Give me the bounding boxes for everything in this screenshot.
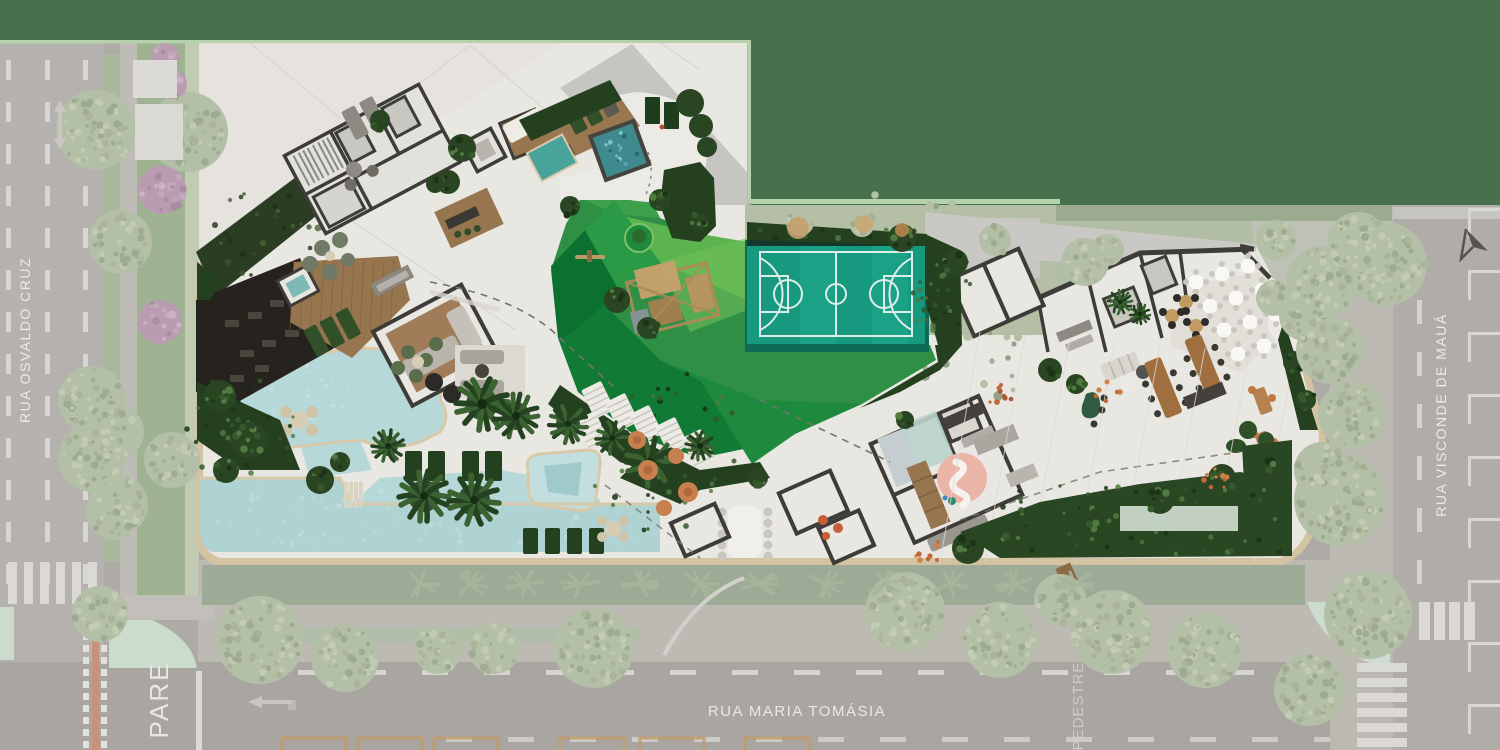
svg-text:PARE: PARE	[144, 662, 174, 739]
svg-text:RUA VISCONDE DE MAUÁ: RUA VISCONDE DE MAUÁ	[1433, 313, 1449, 516]
svg-text:RUA OSVALDO CRUZ: RUA OSVALDO CRUZ	[17, 257, 33, 423]
svg-text:RUA MARIA TOMÁSIA: RUA MARIA TOMÁSIA	[708, 703, 886, 720]
svg-text:PEDESTRE: PEDESTRE	[1070, 662, 1087, 750]
